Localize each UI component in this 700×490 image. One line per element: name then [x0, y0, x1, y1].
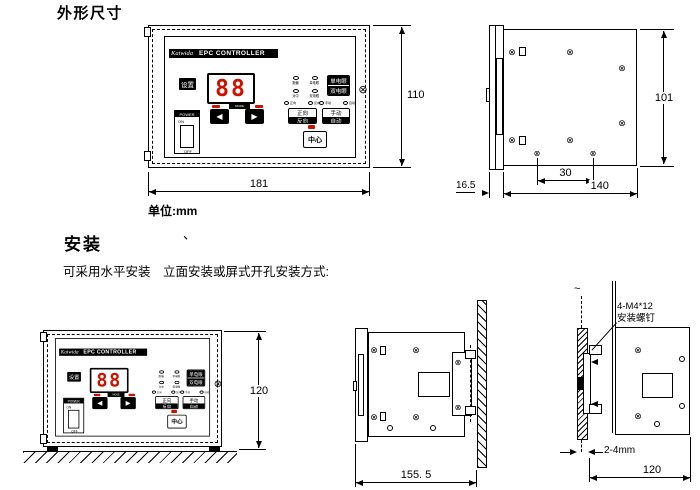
extension-line	[640, 29, 674, 30]
controller-front-panel: Kaiwida EPC CONTROLLER 设置 88 MODE ◀ ▶ PO…	[164, 36, 356, 158]
led-icon	[174, 381, 179, 384]
led-icon	[312, 76, 318, 80]
screw-icon: ⊗	[507, 48, 517, 57]
power-label: POWER	[64, 399, 83, 404]
screw-icon: ⊗	[411, 346, 421, 355]
hole-icon	[387, 425, 393, 431]
hole-icon	[654, 421, 660, 427]
direction-button-bottom: 反向	[289, 117, 316, 124]
panel-extension-dashed	[581, 440, 582, 452]
strip-led-left	[212, 105, 220, 108]
key-slot	[380, 412, 386, 421]
led-indicator: 正向	[152, 391, 162, 394]
seven-segment-display: 88	[90, 368, 129, 393]
controller-front-panel: Kaiwida EPC CONTROLLER 设置 88 MODE ◀ ▶ PO…	[55, 338, 210, 436]
bezel-step	[358, 354, 364, 416]
plate-edge-line	[612, 281, 613, 433]
power-on-label: ON	[178, 119, 184, 124]
screw-callout: 4-M4*12 安装螺钉	[617, 301, 655, 325]
extension-line	[369, 172, 370, 196]
unit-label: 单位:mm	[148, 205, 197, 218]
led-icon	[312, 89, 318, 93]
dim-arrow	[588, 449, 595, 455]
screw-callout-line2: 安装螺钉	[617, 313, 655, 325]
dim-cutout-width: 120	[590, 477, 690, 478]
dim-label-bezel-depth: 16.5	[456, 180, 475, 193]
direction-button: 正向 反向	[155, 396, 178, 409]
hole-icon	[430, 425, 436, 431]
led-icon	[159, 370, 164, 373]
led-indicator: 自动	[200, 391, 210, 394]
power-off-label: OFF	[71, 429, 77, 433]
screw-icon: ⊗	[532, 149, 542, 158]
center-led	[171, 410, 177, 413]
left-arrow-button: ◀	[210, 109, 229, 124]
led-label: 正向	[290, 101, 296, 105]
left-arrow-button: ◀	[92, 397, 107, 409]
bezel-step	[496, 58, 503, 135]
center-button: 中心	[303, 131, 327, 148]
screw-icon: ⊗	[411, 413, 421, 422]
mount-tab	[144, 27, 151, 37]
led-icon	[171, 391, 175, 394]
screw-icon: ⊗	[507, 136, 517, 145]
power-label: POWER	[175, 111, 199, 117]
screw-arrow	[591, 401, 598, 407]
panel-title-bar: Kaiwida EPC CONTROLLER	[59, 349, 147, 356]
bezel-latch	[353, 381, 357, 391]
panel-extension-dashed	[581, 296, 582, 328]
led-label: 双电眼	[310, 94, 319, 99]
eye-button-bottom: 双电眼	[328, 86, 349, 95]
connector-block	[418, 372, 450, 397]
screw-icon: ⊗	[633, 346, 643, 355]
mount-tab	[144, 151, 151, 161]
brand-logo: Kaiwida	[61, 349, 79, 355]
led-label: 跑偏	[159, 375, 164, 379]
led-indicator: 手动	[319, 101, 331, 105]
screw-icon: ⊗	[565, 136, 575, 145]
led-icon	[308, 101, 313, 105]
screw-icon: ⊗	[369, 413, 379, 422]
led-icon	[159, 381, 164, 384]
strip-led-right	[129, 394, 135, 396]
foot	[47, 446, 58, 451]
screw-icon: ⊗	[617, 119, 627, 128]
power-switch: POWER ON OFF	[63, 398, 84, 434]
manual-auto-button-bottom: 自动	[183, 403, 204, 409]
extension-line	[224, 331, 266, 332]
screw-icon: ⊗	[358, 86, 368, 95]
mount-tab	[40, 434, 47, 444]
extension-line	[640, 166, 674, 167]
screw-icon: ⊗	[213, 380, 223, 389]
direction-button: 正向 反向	[288, 108, 317, 124]
extension-line	[489, 172, 490, 198]
led-indicator: 手动	[180, 391, 190, 394]
led-icon	[152, 391, 156, 394]
extension-line	[239, 449, 266, 450]
screw-icon: ⊗	[453, 403, 463, 412]
led-label: 手动	[325, 101, 331, 105]
screw-icon: ⊗	[565, 48, 575, 57]
manual-auto-button-top: 手动	[323, 109, 349, 117]
led-indicator: 单电眼	[306, 76, 323, 86]
led-icon	[174, 370, 179, 373]
leader-line	[591, 322, 617, 350]
power-rocker	[68, 410, 79, 429]
screw-icon: ⊗	[617, 64, 627, 73]
led-indicator: 对中	[287, 89, 304, 99]
section-title-dimensions: 外形尺寸	[57, 6, 123, 23]
right-arrow-button: ▶	[120, 397, 135, 409]
led-label: 对中	[292, 94, 298, 99]
key-slot	[380, 346, 386, 355]
led-label: 自动	[349, 101, 355, 105]
dim-install-depth: 155. 5	[356, 482, 476, 483]
eye-button-top: 单电眼	[187, 370, 204, 378]
technical-drawing: 外形尺寸 单位:mm 安装 、 可采用水平安装 立面安装或屏式开孔安装方式: K…	[0, 0, 700, 490]
led-label: 单电眼	[173, 375, 181, 379]
seven-segment-display: 88	[207, 73, 255, 104]
connector-block	[642, 373, 673, 398]
screw-icon: ⊗	[369, 346, 379, 355]
led-label: 对中	[159, 385, 164, 389]
center-led	[308, 125, 315, 129]
screw-callout-line1: 4-M4*12	[617, 301, 655, 313]
power-on-label: ON	[66, 405, 71, 409]
led-icon	[284, 101, 289, 105]
install-note: 可采用水平安装 立面安装或屏式开孔安装方式:	[63, 266, 329, 280]
led-indicator: 跑偏	[154, 370, 168, 378]
extension-line	[690, 437, 691, 482]
panel-title: EPC CONTROLLER	[83, 349, 136, 355]
front-view-outline: Kaiwida EPC CONTROLLER 设置 88 MODE ◀ ▶ PO…	[148, 25, 370, 168]
led-icon	[200, 391, 204, 394]
dim-arrow	[570, 449, 577, 455]
led-indicator: 自动	[343, 101, 355, 105]
hole-icon	[679, 356, 685, 362]
power-rocker	[180, 125, 194, 148]
eye-select-button: 单电眼 双电眼	[187, 370, 206, 387]
dim-label: 110	[407, 89, 425, 101]
led-label: 手动	[185, 391, 190, 394]
led-icon	[343, 101, 348, 105]
strip-led-right	[255, 105, 263, 108]
section-title-install: 安装	[64, 236, 102, 255]
direction-button-bottom: 反向	[156, 403, 178, 409]
dim-body-height: 101	[663, 31, 664, 164]
extension-line	[637, 168, 638, 198]
panel-title: EPC CONTROLLER	[199, 50, 265, 57]
eye-button-top: 单电眼	[328, 76, 349, 86]
dim-arrow	[482, 190, 489, 196]
manual-auto-button: 手动 自动	[322, 108, 350, 124]
eye-select-button: 单电眼 双电眼	[327, 75, 350, 96]
power-off-label: OFF	[184, 149, 192, 154]
dim-label: 120	[249, 385, 269, 397]
led-icon	[293, 89, 299, 93]
manual-auto-button-bottom: 自动	[323, 117, 349, 124]
dim-label: 30	[557, 167, 573, 179]
set-button: 设置	[67, 372, 81, 382]
stray-mark: 、	[183, 228, 196, 242]
dim-label: 120	[641, 464, 663, 476]
led-label: 单电眼	[310, 81, 319, 86]
screw-icon: ⊗	[633, 412, 643, 421]
break-mark: ~	[574, 283, 580, 295]
led-indicator: 正向	[284, 101, 296, 105]
dim-label: 155. 5	[399, 469, 434, 481]
display-digits: 88	[96, 370, 122, 391]
foot	[209, 446, 220, 451]
eye-button-bottom: 双电眼	[187, 378, 204, 385]
extension-line	[373, 25, 411, 26]
dim-label-panel-thickness: 2-4mm	[604, 445, 635, 456]
direction-button-top: 正向	[289, 109, 316, 117]
display-digits: 88	[215, 76, 247, 102]
wall	[477, 300, 487, 468]
dim-front-height	[401, 27, 402, 166]
led-label: 双电眼	[173, 385, 181, 389]
led-icon	[319, 101, 324, 105]
dim-label: 140	[589, 180, 611, 192]
screw-arrow	[591, 359, 598, 365]
dim-hole-pitch: 30	[538, 180, 593, 181]
led-indicator: 单电眼	[170, 370, 184, 378]
mount-clip	[465, 350, 476, 359]
led-indicator: 跑偏	[287, 76, 304, 86]
key-slot	[519, 136, 526, 145]
dim-install-height: 120	[258, 333, 259, 448]
brand-logo: Kaiwida	[171, 50, 193, 57]
dim-label: 101	[654, 92, 674, 104]
hole-icon	[679, 403, 685, 409]
power-switch: POWER ON OFF	[174, 110, 200, 154]
led-label: 正向	[157, 391, 162, 394]
led-indicator: 对中	[154, 381, 168, 389]
extension-line	[373, 167, 411, 168]
screw-icon: ⊗	[453, 358, 463, 367]
mount-tab	[40, 332, 47, 342]
extension-line	[476, 470, 477, 487]
led-icon	[180, 391, 184, 394]
manual-auto-button: 手动 自动	[183, 396, 206, 409]
clamp-block	[578, 377, 583, 390]
led-label: 跑偏	[292, 81, 298, 86]
center-button: 中心	[167, 415, 186, 429]
dim-line	[595, 452, 603, 453]
led-indicator: 双电眼	[306, 89, 323, 99]
led-icon	[293, 76, 299, 80]
led-label: 自动	[204, 391, 209, 394]
screw-icon: ⊗	[588, 149, 598, 158]
dim-label: 181	[248, 178, 270, 190]
dim-front-width: 181	[149, 191, 369, 192]
bezel-latch	[486, 88, 490, 102]
panel-title-bar: Kaiwida EPC CONTROLLER	[169, 49, 278, 58]
mount-clip	[465, 406, 476, 415]
led-indicator: 双电眼	[170, 381, 184, 389]
ground-hatch	[23, 452, 237, 463]
strip-led-left	[94, 394, 100, 396]
right-arrow-button: ▶	[245, 109, 264, 124]
key-slot	[519, 47, 526, 56]
dim-body-width: 140	[504, 193, 637, 194]
set-button: 设置	[179, 78, 196, 90]
